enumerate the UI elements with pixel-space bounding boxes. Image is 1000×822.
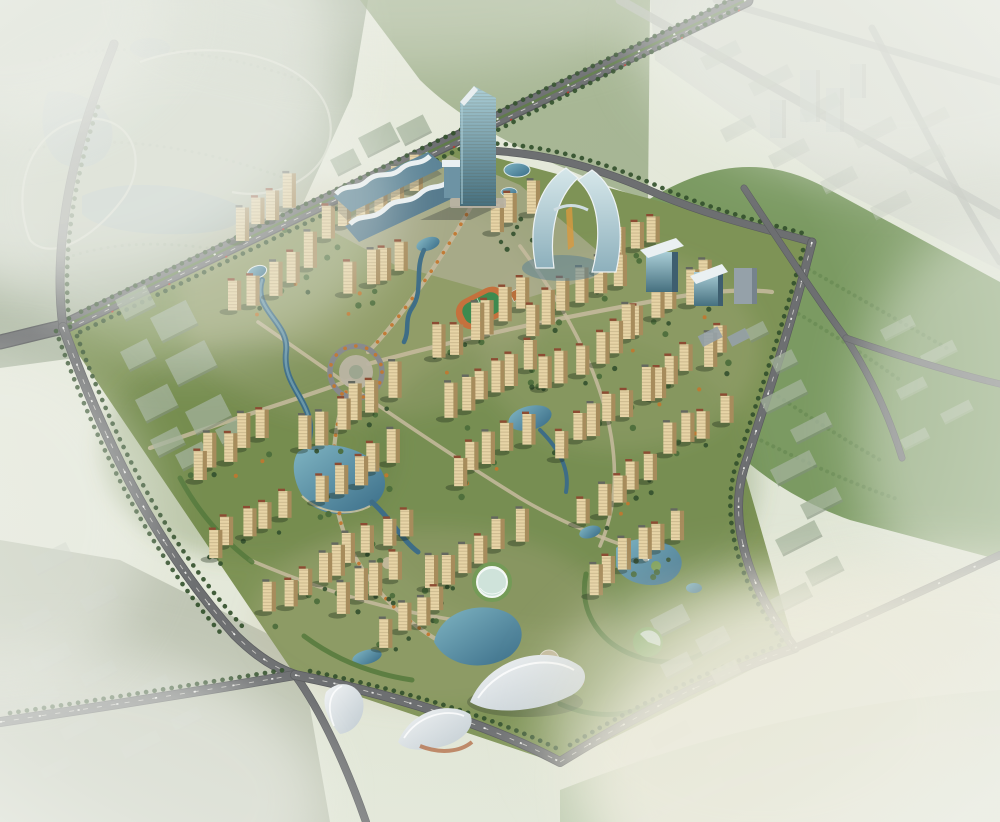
aerial-rendering — [0, 0, 1000, 822]
vignette — [0, 0, 1000, 822]
scene-svg — [0, 0, 1000, 822]
haze-overlay — [0, 0, 1000, 822]
